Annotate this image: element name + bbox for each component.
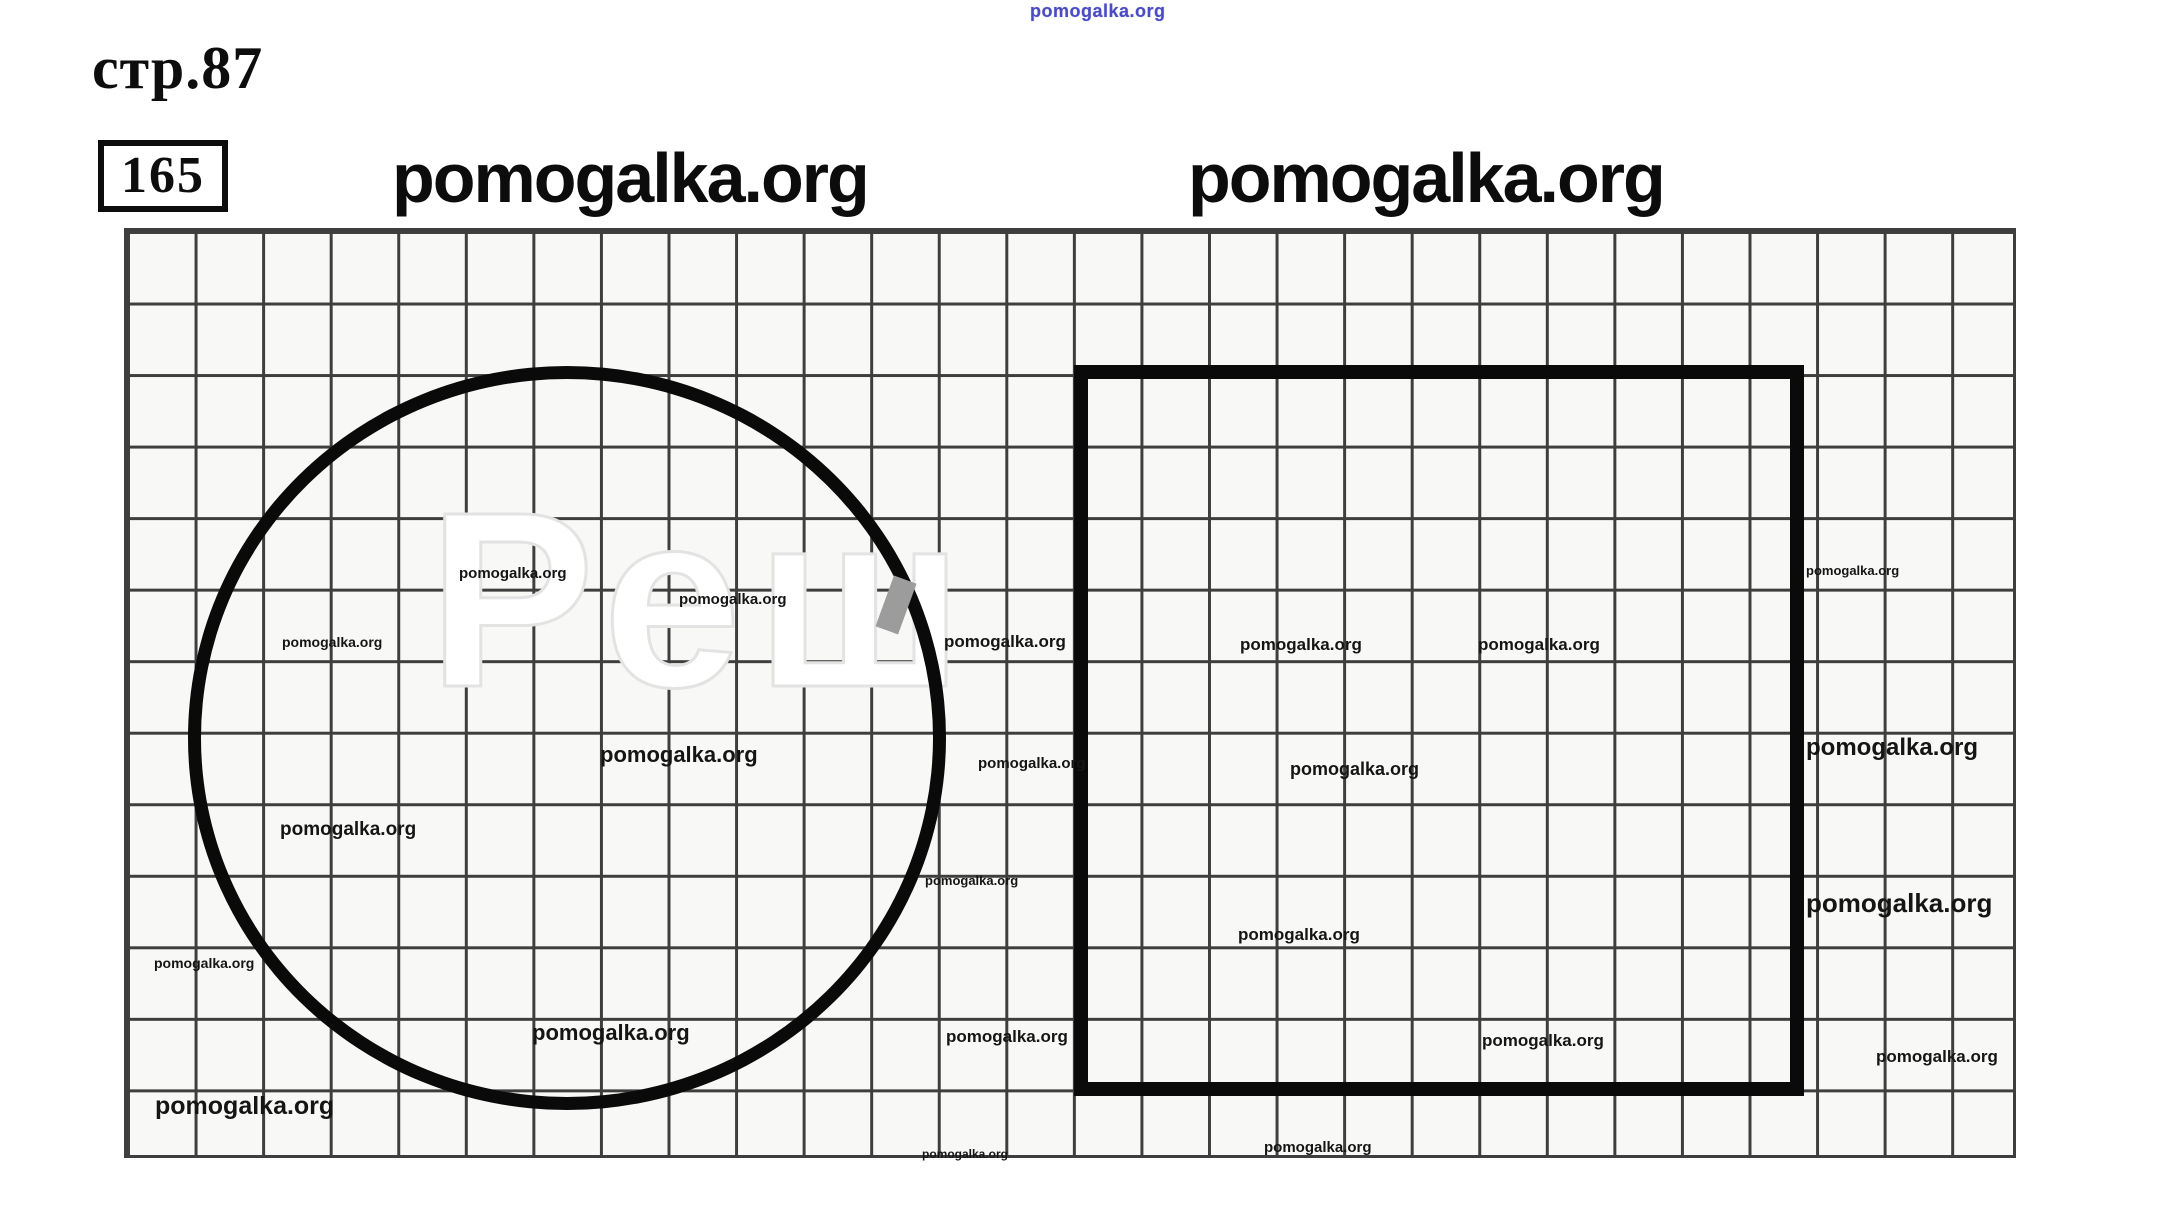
scattered-watermark: pomogalka.org <box>978 756 1086 771</box>
scattered-watermark: pomogalka.org <box>1290 760 1419 778</box>
scattered-watermark: pomogalka.org <box>679 592 787 607</box>
scattered-watermark: pomogalka.org <box>1240 636 1362 653</box>
scattered-watermark: pomogalka.org <box>154 956 254 970</box>
scattered-watermark: pomogalka.org <box>459 566 567 581</box>
scattered-watermark: pomogalka.org <box>280 820 416 839</box>
scattered-watermark: pomogalka.org <box>1478 636 1600 653</box>
scattered-watermark: pomogalka.org <box>282 635 382 649</box>
task-number: 165 <box>121 150 205 202</box>
scattered-watermark: pomogalka.org <box>1806 564 1899 577</box>
scattered-watermark: pomogalka.org <box>532 1022 690 1044</box>
scanned-textbook-page: pomogalka.org стр.87 165 pomogalka.org p… <box>0 0 2182 1223</box>
scattered-watermark: pomogalka.org <box>1482 1032 1604 1049</box>
scattered-watermark: pomogalka.org <box>944 633 1066 650</box>
scattered-watermark: pomogalka.org <box>1806 736 1978 760</box>
watermark-layer: pomogalka.orgpomogalka.orgpomogalka.orgp… <box>0 0 2182 1223</box>
scattered-watermark: pomogalka.org <box>1264 1140 1372 1155</box>
scattered-watermark: pomogalka.org <box>155 1094 334 1119</box>
top-blue-watermark: pomogalka.org <box>1030 1 1166 22</box>
scattered-watermark: pomogalka.org <box>1876 1048 1998 1065</box>
scattered-watermark: pomogalka.org <box>922 1148 1008 1160</box>
scattered-watermark: pomogalka.org <box>1806 890 1992 916</box>
scattered-watermark: pomogalka.org <box>600 744 758 766</box>
task-number-box: 165 <box>98 140 228 212</box>
watermark-heading-right: pomogalka.org <box>1188 140 1664 217</box>
scattered-watermark: pomogalka.org <box>925 874 1018 887</box>
scattered-watermark: pomogalka.org <box>946 1028 1068 1045</box>
scattered-watermark: pomogalka.org <box>1238 926 1360 943</box>
page-number-label: стр.87 <box>92 34 263 103</box>
watermark-heading-left: pomogalka.org <box>392 140 868 217</box>
